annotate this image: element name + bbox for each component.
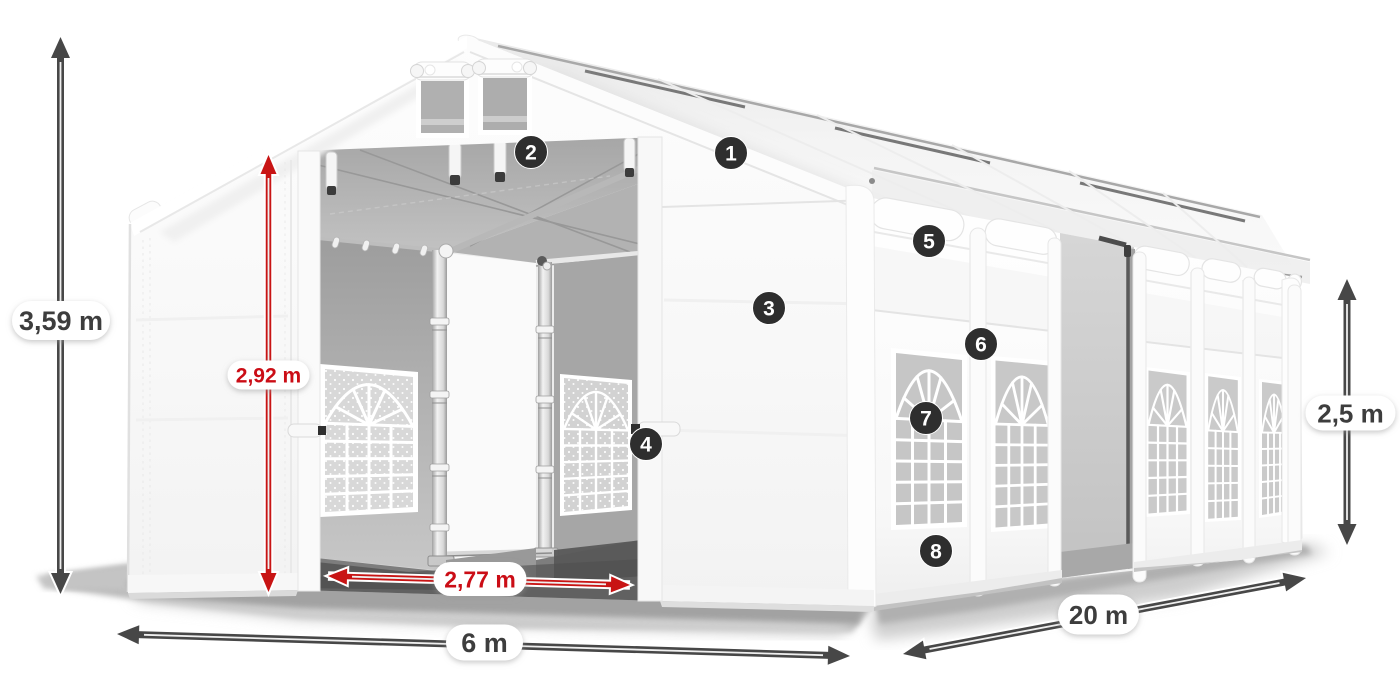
svg-text:2,5 m: 2,5 m [1317, 398, 1384, 428]
svg-text:20 m: 20 m [1069, 600, 1128, 630]
svg-text:6 m: 6 m [461, 628, 508, 658]
svg-text:7: 7 [920, 408, 932, 431]
svg-text:5: 5 [923, 231, 935, 254]
svg-text:2,77 m: 2,77 m [444, 566, 516, 592]
svg-text:1: 1 [725, 143, 737, 166]
svg-text:2,92 m: 2,92 m [236, 365, 301, 388]
svg-text:4: 4 [640, 434, 652, 457]
svg-text:6: 6 [975, 334, 987, 357]
svg-text:3: 3 [763, 298, 775, 321]
svg-text:2: 2 [525, 142, 537, 165]
svg-text:8: 8 [930, 541, 942, 564]
svg-text:3,59 m: 3,59 m [19, 306, 103, 336]
